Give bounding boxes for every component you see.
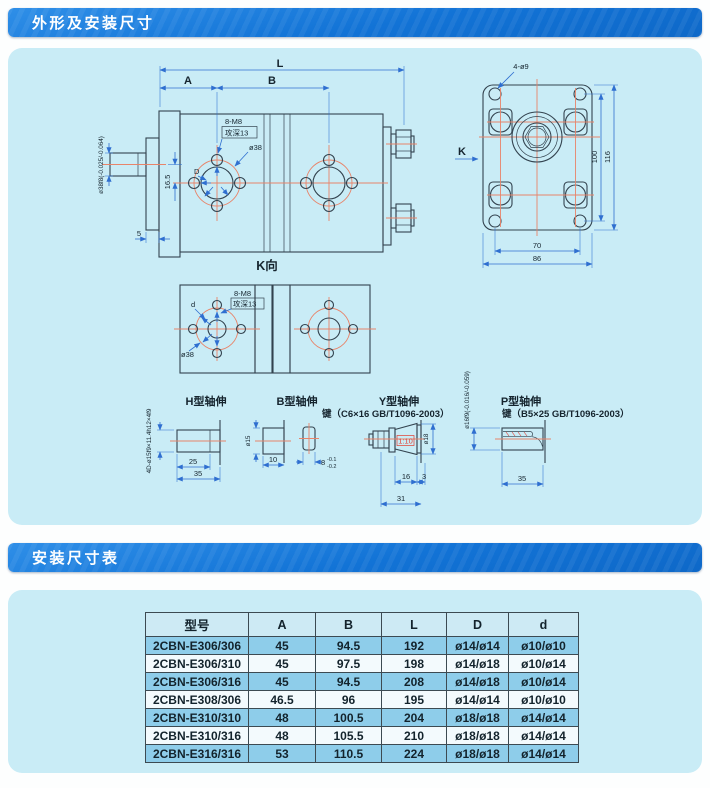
shaft-y-dim31: 31 — [397, 494, 405, 503]
dimension-cell: ø14/ø14 — [509, 709, 579, 727]
shaft-y-key-spec: 键（C6×16 GB/T1096-2003） — [321, 408, 450, 420]
dimension-cell: 210 — [382, 727, 447, 745]
k-bolt-circle-label: ø38 — [181, 350, 194, 359]
dimension-cell: 100.5 — [316, 709, 382, 727]
shaft-b-key-width: 8 — [321, 458, 325, 467]
dimension-cell: 97.5 — [316, 655, 382, 673]
shaft-y-dim3: 3 — [422, 472, 426, 481]
dimension-cell: 45 — [249, 673, 316, 691]
dimension-cell: ø14/ø14 — [509, 745, 579, 763]
dimension-cell: 53 — [249, 745, 316, 763]
dimension-cell: 96 — [316, 691, 382, 709]
table-row: 2CBN-E310/31648105.5210ø18/ø18ø14/ø14 — [146, 727, 579, 745]
column-header: L — [382, 613, 447, 637]
shaft-p-dim35: 35 — [518, 474, 526, 483]
k-view: 8-M8 攻深13 d ø38 — [174, 285, 376, 373]
table-row: 2CBN-E308/30646.596195ø14/ø14ø10/ø10 — [146, 691, 579, 709]
shaft-type-b: B型轴伸 ø15 10 8 -0.1 -0.2 — [245, 394, 336, 470]
port-fitting-top — [386, 130, 417, 158]
installation-dimensions-table: 型号ABLDd 2CBN-E306/3064594.5192ø14/ø14ø10… — [145, 612, 579, 763]
dimension-cell: 105.5 — [316, 727, 382, 745]
table-row: 2CBN-E306/3064594.5192ø14/ø14ø10/ø10 — [146, 637, 579, 655]
dimension-cell: 224 — [382, 745, 447, 763]
k-thread-depth-label: 攻深13 — [233, 299, 256, 309]
column-header: B — [316, 613, 382, 637]
dimension-cell: 204 — [382, 709, 447, 727]
dimension-cell: ø14/ø18 — [447, 655, 509, 673]
shaft-p-title: P型轴伸 — [501, 394, 541, 408]
dimension-cell: ø14/ø14 — [509, 727, 579, 745]
table-header-row: 型号ABLDd — [146, 613, 579, 637]
section-title-bar-table: 安装尺寸表 — [8, 543, 702, 572]
dimension-cell: ø10/ø14 — [509, 655, 579, 673]
dimension-cell: 208 — [382, 673, 447, 691]
section-title-dimensions: 外形及安装尺寸 — [32, 12, 155, 33]
dim-100-label: 100 — [590, 151, 599, 164]
table-row: 2CBN-E310/31048100.5204ø18/ø18ø14/ø14 — [146, 709, 579, 727]
section-title-bar-dimensions: 外形及安装尺寸 — [8, 8, 702, 37]
table-row: 2CBN-E306/3104597.5198ø14/ø18ø10/ø14 — [146, 655, 579, 673]
shaft-type-h: H型轴伸 4D-ø15f9×11.4h12×4f9 25 35 — [146, 394, 226, 482]
shaft-y-dia-label: ø18 — [423, 433, 430, 444]
dimension-cell: ø14/ø14 — [447, 691, 509, 709]
model-cell: 2CBN-E306/316 — [146, 673, 249, 691]
dimension-cell: ø18/ø18 — [447, 709, 509, 727]
shaft-h-dim35: 35 — [194, 469, 202, 478]
holes-callout: 4-ø9 — [513, 62, 528, 71]
dim-label-B: B — [268, 75, 276, 87]
shaft-y-title: Y型轴伸 — [379, 394, 419, 408]
shaft-y-dim16: 16 — [402, 472, 410, 481]
k-d-label: d — [191, 300, 195, 309]
dim-116-label: 116 — [603, 151, 612, 163]
flange-lip — [146, 138, 159, 230]
shaft-b-key-tol-lower: -0.2 — [327, 464, 336, 470]
shaft-p-key-spec: 键（B5×25 GB/T1096-2003） — [501, 408, 630, 420]
dimension-cell: 198 — [382, 655, 447, 673]
section-title-table: 安装尺寸表 — [32, 547, 120, 568]
shaft-dia-label: ø38f8(-0.025/-0.064) — [98, 136, 105, 194]
table-row: 2CBN-E306/3164594.5208ø14/ø18ø10/ø14 — [146, 673, 579, 691]
dimension-cell: ø18/ø18 — [447, 727, 509, 745]
dimension-cell: ø10/ø10 — [509, 637, 579, 655]
dim-label-A: A — [184, 75, 192, 87]
dim-70-label: 70 — [533, 241, 541, 250]
column-header: D — [447, 613, 509, 637]
model-cell: 2CBN-E306/310 — [146, 655, 249, 673]
dimension-cell: 110.5 — [316, 745, 382, 763]
dim-label-L: L — [277, 58, 284, 70]
dimension-cell: 94.5 — [316, 673, 382, 691]
model-cell: 2CBN-E316/316 — [146, 745, 249, 763]
thread-depth-label: 攻深13 — [225, 128, 248, 138]
shaft-type-y: Y型轴伸 键（C6×16 GB/T1096-2003） 1:10 ø18 16 … — [321, 394, 450, 507]
shaft-h-dim25: 25 — [189, 457, 197, 466]
shaft-b-dim10: 10 — [269, 455, 277, 464]
bearing-pads — [489, 109, 587, 208]
rear-cover — [383, 127, 391, 245]
port-d-label: D — [194, 167, 200, 176]
column-header: 型号 — [146, 613, 249, 637]
dimension-cell: 195 — [382, 691, 447, 709]
model-cell: 2CBN-E306/306 — [146, 637, 249, 655]
shaft-h-title: H型轴伸 — [186, 394, 227, 408]
shaft-h-spline-label: 4D-ø15f9×11.4h12×4f9 — [146, 408, 153, 473]
shaft-b-dia-label: ø15 — [245, 435, 252, 446]
dimension-cell: 48 — [249, 727, 316, 745]
main-side-view: L A B 8-M8 攻深13 ø38 D 16.5 — [98, 58, 417, 273]
table-row: 2CBN-E316/31653110.5224ø18/ø18ø14/ø14 — [146, 745, 579, 763]
shaft-y-taper-label: 1:10 — [398, 437, 413, 446]
dimension-cell: ø18/ø18 — [447, 745, 509, 763]
shaft-b-title: B型轴伸 — [277, 394, 318, 408]
column-header: d — [509, 613, 579, 637]
offset-dim-label: 16.5 — [163, 175, 172, 190]
shaft-b-key-tol-upper: -0.1 — [327, 457, 336, 463]
dimension-cell: 192 — [382, 637, 447, 655]
page: 外形及安装尺寸 — [0, 0, 710, 788]
shaft-y-nut — [373, 431, 389, 448]
dimension-cell: ø14/ø18 — [447, 673, 509, 691]
k-direction-label: K — [458, 146, 466, 158]
thread-label: 8-M8 — [225, 117, 242, 126]
dimension-cell: ø14/ø14 — [447, 637, 509, 655]
dimension-cell: 48 — [249, 709, 316, 727]
k-view-caption: K向 — [256, 258, 278, 273]
k-thread-label: 8-M8 — [234, 289, 251, 298]
model-cell: 2CBN-E308/306 — [146, 691, 249, 709]
model-cell: 2CBN-E310/316 — [146, 727, 249, 745]
end-view: 4-ø9 100 116 70 86 K — [455, 62, 618, 268]
dimension-cell: ø10/ø14 — [509, 673, 579, 691]
shaft-p-dia-label: ø16f9(-0.016/-0.059) — [464, 371, 471, 429]
shaft-type-p: P型轴伸 键（B5×25 GB/T1096-2003） ø16f9(-0.016… — [464, 371, 630, 487]
dim-86-label: 86 — [533, 254, 541, 263]
port-fitting-bottom — [386, 204, 417, 232]
dimension-cell: 45 — [249, 637, 316, 655]
column-header: A — [249, 613, 316, 637]
dimension-cell: 94.5 — [316, 637, 382, 655]
dimension-cell: ø10/ø10 — [509, 691, 579, 709]
dimension-cell: 45 — [249, 655, 316, 673]
dimension-cell: 46.5 — [249, 691, 316, 709]
model-cell: 2CBN-E310/310 — [146, 709, 249, 727]
engineering-drawing: L A B 8-M8 攻深13 ø38 D 16.5 — [8, 55, 702, 525]
bolt-circle-label: ø38 — [249, 143, 262, 152]
flange-dim-label: 5 — [137, 229, 141, 238]
